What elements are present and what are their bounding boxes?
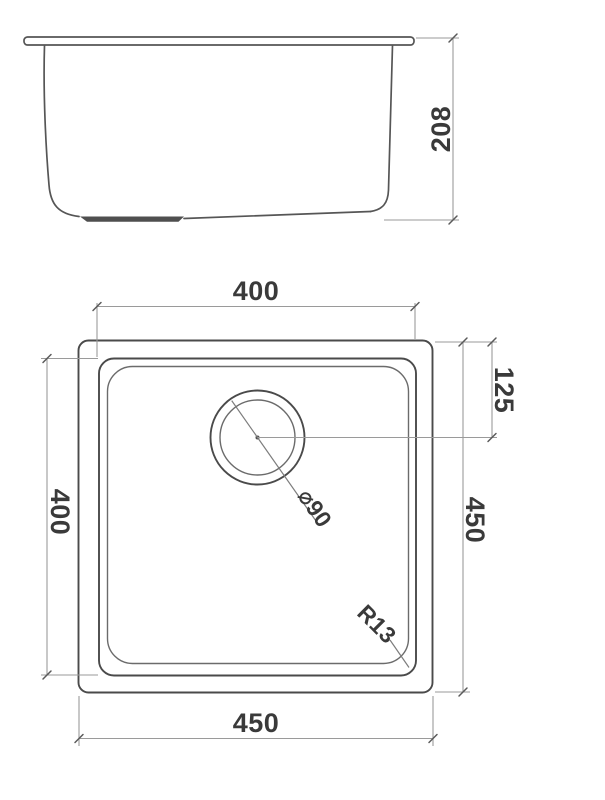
plan-view: ⌀90 R13 400 <box>41 276 519 746</box>
elevation-right-wall <box>371 46 393 212</box>
elevation-drain-pad <box>80 217 184 222</box>
depth-dim-label: 208 <box>426 106 456 153</box>
sink-technical-drawing: 208 ⌀90 R13 <box>0 0 605 800</box>
elevation-left-wall <box>44 46 79 217</box>
top-width-label: 400 <box>233 276 280 306</box>
drain-diameter-label: ⌀90 <box>293 484 338 532</box>
right-height-label: 450 <box>460 497 490 544</box>
drain-offset-label: 125 <box>489 367 519 414</box>
dimension-drain-offset: 125 <box>258 338 520 442</box>
drain: ⌀90 <box>211 391 338 533</box>
corner-radius-label: R13 <box>352 599 401 648</box>
dimension-bottom-width: 450 <box>75 696 437 746</box>
elevation-rim <box>24 37 414 45</box>
corner-radius-leader <box>390 640 409 668</box>
bottom-width-label: 450 <box>233 708 280 738</box>
dimension-right-height: 450 <box>435 338 490 696</box>
elevation-view: 208 <box>24 34 459 224</box>
dimension-left-height: 400 <box>41 355 98 680</box>
dimension-depth: 208 <box>384 34 459 224</box>
dimension-top-width: 400 <box>93 276 419 357</box>
elevation-bottom <box>184 212 371 219</box>
left-height-label: 400 <box>45 489 75 536</box>
drawing-svg: 208 ⌀90 R13 <box>0 0 605 800</box>
